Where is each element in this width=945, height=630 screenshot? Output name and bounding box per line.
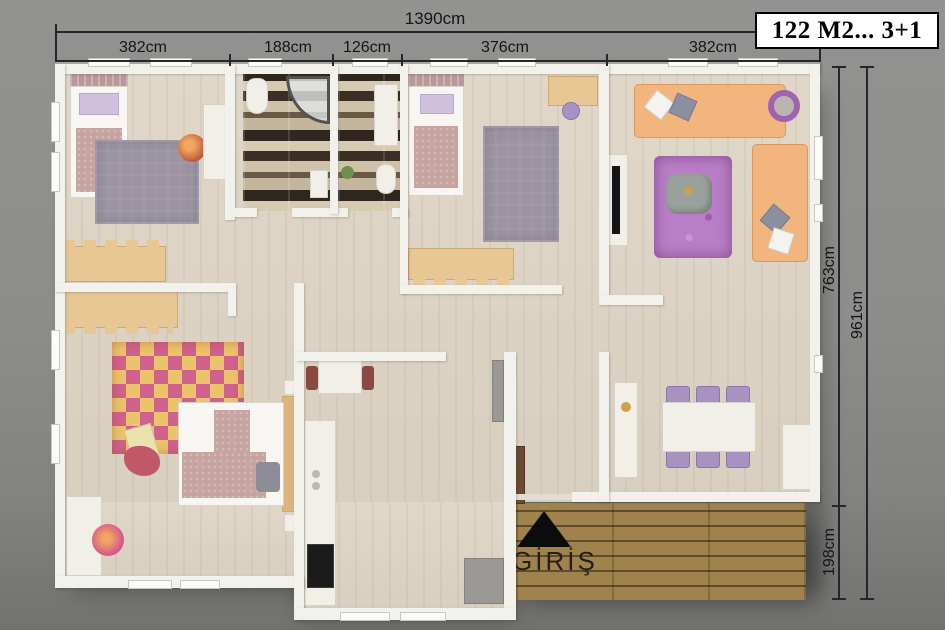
window: [814, 204, 823, 222]
bath2-plant: [341, 166, 354, 179]
wall-left: [55, 64, 65, 588]
wall-living-dining-stub: [599, 295, 663, 305]
bedroom1-beanbag: [178, 134, 206, 162]
dim-seg-label-5: 382cm: [668, 39, 758, 57]
bed2-pillow: [420, 94, 454, 114]
window: [180, 580, 220, 589]
washing-machine: [310, 170, 328, 198]
bedroom1-desk: [203, 104, 227, 180]
window: [814, 136, 823, 180]
wall-dining-left: [599, 352, 609, 502]
wall-kitchen-top: [296, 352, 446, 361]
bed2-blanket: [414, 126, 458, 188]
bedroom3-beanbag: [92, 524, 124, 556]
bed3-blanket-h: [182, 452, 266, 498]
dim-tick: [606, 54, 608, 66]
window: [51, 152, 60, 192]
toilet-2: [376, 164, 396, 194]
wall-bath-bottom-a: [235, 208, 257, 217]
plan-title: 122 M2... 3+1: [772, 17, 923, 45]
wall-bedroom1-right: [225, 64, 235, 220]
dim-seg-label-2: 188cm: [243, 39, 333, 57]
window: [51, 424, 60, 464]
dim-tick: [832, 598, 846, 600]
dim-seg-label-4: 376cm: [460, 39, 550, 57]
bed1-pillow: [79, 93, 119, 115]
bedroom2-rug: [483, 126, 559, 242]
wall-bedroom2-bottom: [400, 285, 562, 294]
wall-bath-bottom-b: [292, 208, 348, 217]
dim-right-upper-label: 763cm: [821, 230, 839, 310]
dim-right-total-label: 961cm: [849, 275, 867, 355]
window: [340, 612, 390, 621]
toilet-1: [246, 78, 268, 114]
bedroom3-wardrobe: [58, 288, 178, 328]
window: [51, 330, 60, 370]
dim-seg-label-3: 126cm: [322, 39, 412, 57]
kitchen-sink-bowl-2: [312, 482, 320, 490]
entrance-arrow-icon: [517, 511, 571, 547]
wall-bath-divider: [330, 64, 338, 214]
dim-tick: [55, 24, 57, 62]
bedroom1-wardrobe: [58, 246, 166, 282]
wall-stub-hall: [228, 283, 236, 316]
entrance-threshold: [516, 494, 572, 500]
dim-tick: [860, 598, 874, 600]
wall-kitchen-right: [504, 352, 516, 608]
kitchen-sink-bowl-1: [312, 470, 320, 478]
window: [400, 612, 446, 621]
dimension-line-top-total: [56, 31, 820, 33]
bedroom2-chair: [562, 102, 580, 120]
bath2-counter: [374, 84, 398, 146]
wall-bedroom3-kitchen: [294, 283, 304, 620]
dim-seg-label-1: 382cm: [98, 39, 188, 57]
window: [51, 102, 60, 142]
kitchen-bin: [464, 558, 504, 604]
floor-plan-stage: GİRİŞ: [0, 0, 945, 630]
kitchen-fridge: [492, 360, 504, 422]
kitchen-chair-right: [362, 366, 374, 390]
kitchen-stove: [307, 544, 334, 588]
window: [814, 355, 823, 373]
window: [128, 580, 172, 589]
plan-title-box: 122 M2... 3+1: [755, 12, 939, 49]
dim-tick: [832, 505, 846, 507]
tv: [612, 166, 620, 234]
dining-sideboard: [614, 382, 638, 478]
kitchen-chair-left: [306, 366, 318, 390]
bed3-pillow-gray: [256, 462, 280, 492]
dim-tick: [229, 54, 231, 66]
dining-table: [662, 402, 756, 452]
dining-vase: [621, 402, 631, 412]
entrance-label: GİRİŞ: [512, 546, 598, 577]
wall-right: [810, 64, 820, 502]
wall-living-left: [599, 64, 609, 298]
side-table-decor: [768, 90, 800, 122]
wall-bedroom1-bedroom3: [55, 283, 230, 292]
dim-top-total-label: 1390cm: [390, 9, 480, 29]
bedroom2-wardrobe: [408, 248, 514, 280]
dim-tick: [832, 66, 846, 68]
kitchen-table: [318, 360, 362, 394]
coffee-table-item: [684, 186, 693, 195]
dimension-line-top-segments: [56, 60, 820, 62]
wall-bottom-right: [572, 492, 820, 502]
dim-right-lower-label: 198cm: [821, 512, 839, 592]
wall-bedroom2-left: [400, 64, 408, 293]
dim-tick: [860, 66, 874, 68]
